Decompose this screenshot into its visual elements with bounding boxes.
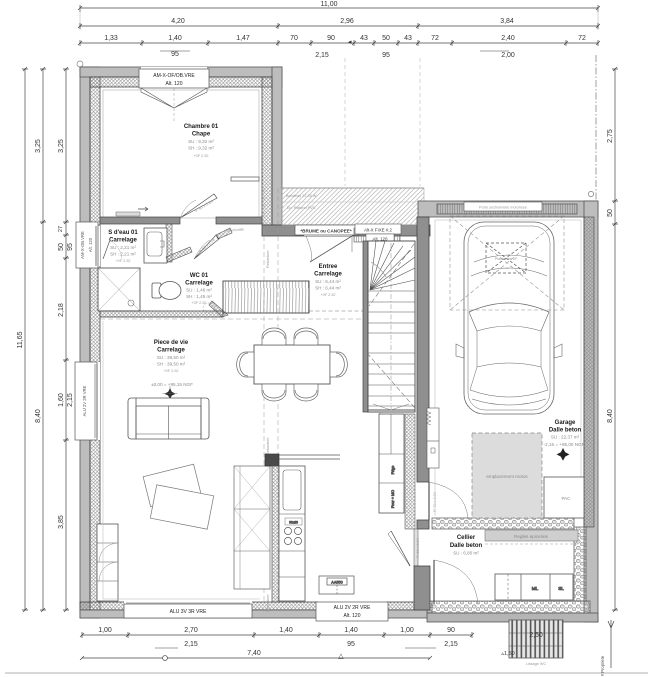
svg-text:70: 70 [290,35,298,42]
svg-text:Four + MO: Four + MO [391,490,395,508]
svg-text:90x89: 90x89 [289,521,298,525]
svg-text:1,00: 1,00 [98,627,112,634]
svg-text:+0F 2.52: +0F 2.52 [193,154,208,158]
svg-text:+0F 2.52: +0F 2.52 [320,293,335,297]
svg-text:SH : 2,21 m²: SH : 2,21 m² [110,252,136,257]
svg-text:emplacement motos: emplacement motos [486,474,528,479]
svg-text:50: 50 [607,209,614,217]
svg-text:Alt. 120: Alt. 120 [88,237,93,252]
svg-text:8,40: 8,40 [35,409,42,423]
svg-text:+0F 2.52: +0F 2.52 [163,369,178,373]
svg-text:72: 72 [578,35,586,42]
svg-text:1,40: 1,40 [168,35,182,42]
svg-text:95: 95 [67,243,74,251]
svg-text:Retombee: Retombee [266,594,270,612]
svg-text:ALU 2V 2R VRE: ALU 2V 2R VRE [82,385,87,416]
svg-text:SU : 6,44 m²: SU : 6,44 m² [315,279,341,284]
svg-text:SU : 6,80 m²: SU : 6,80 m² [453,551,479,556]
svg-text:AM-X-OB.VRE: AM-X-OB.VRE [80,231,85,259]
svg-text:Ep. Plafond PVC: Ep. Plafond PVC [287,206,316,210]
svg-text:Alt. 120: Alt. 120 [166,81,183,87]
svg-text:2,00: 2,00 [501,52,515,59]
svg-text:PAC: PAC [561,496,571,501]
svg-text:±0,00 = +95,15 NGF: ±0,00 = +95,15 NGF [151,382,193,387]
svg-text:SH : 1,45 m²: SH : 1,45 m² [186,294,212,299]
svg-text:3,84: 3,84 [500,18,514,25]
svg-text:Carrelage: Carrelage [314,272,342,278]
svg-text:90: 90 [327,35,335,42]
svg-text:P. 93 x 2.04: P. 93 x 2.04 [416,538,420,558]
svg-text:*BRUME ou CANOPEE*: *BRUME ou CANOPEE* [300,229,352,234]
svg-text:Alt-X FIXE #.2: Alt-X FIXE #.2 [364,228,392,233]
svg-text:2,40: 2,40 [501,35,515,42]
svg-text:Frigo: Frigo [391,466,395,475]
svg-text:SH : 6,44 m²: SH : 6,44 m² [315,286,341,291]
svg-text:Chambre 01: Chambre 01 [184,124,219,130]
svg-text:Garage: Garage [555,420,576,426]
svg-text:Lissage WC: Lissage WC [526,662,547,666]
svg-text:2,15: 2,15 [444,641,458,648]
svg-text:Plafonnier 2F: Plafonnier 2F [495,257,518,261]
svg-text:2,75: 2,75 [607,129,614,143]
svg-text:3,25: 3,25 [35,139,42,153]
svg-text:Carrelage: Carrelage [185,281,213,287]
svg-text:Entree: Entree [319,264,338,270]
svg-text:Dalle beton: Dalle beton [450,543,483,549]
svg-text:AM-X-OF/OB.VRE: AM-X-OF/OB.VRE [153,73,195,79]
svg-text:2,50: 2,50 [529,632,543,639]
svg-text:2,15: 2,15 [184,641,198,648]
svg-text:AA550: AA550 [331,581,342,585]
svg-text:SU : 9,32 m²: SU : 9,32 m² [188,139,214,144]
svg-text:Piece de vie: Piece de vie [154,340,189,346]
svg-text:Dalle beton: Dalle beton [549,428,582,434]
svg-text:SU : 1,46 m²: SU : 1,46 m² [186,288,212,293]
svg-text:SU : 2,21 m²: SU : 2,21 m² [110,245,136,250]
svg-text:SL: SL [558,586,564,591]
svg-text:2,18: 2,18 [58,303,65,317]
svg-text:Retombee: Retombee [266,437,270,455]
svg-text:1,47: 1,47 [236,35,250,42]
svg-text:ALU 2V 2R VRE: ALU 2V 2R VRE [334,605,371,611]
svg-text:4,20: 4,20 [171,18,185,25]
svg-text:Regles epiceries: Regles epiceries [514,534,549,539]
svg-text:8,40: 8,40 [607,409,614,423]
svg-text:50: 50 [382,35,390,42]
svg-text:1,00: 1,00 [400,627,414,634]
svg-text:7,40: 7,40 [247,650,261,657]
svg-text:3,85: 3,85 [58,515,65,529]
svg-text:+0F 2.52: +0F 2.52 [115,259,130,263]
svg-text:2,96: 2,96 [340,18,354,25]
svg-text:95: 95 [171,51,179,58]
svg-text:11,00: 11,00 [321,1,338,8]
svg-text:2,70: 2,70 [184,627,198,634]
svg-text:1,33: 1,33 [104,35,118,42]
svg-text:Chape: Chape [192,132,211,138]
svg-text:SH : 9,32 m²: SH : 9,32 m² [188,146,214,151]
svg-text:2,15: 2,15 [315,52,329,59]
svg-text:-2,15 = +95,00 NGF: -2,15 = +95,00 NGF [544,442,585,447]
svg-text:Porte sectionnelle motorisee: Porte sectionnelle motorisee [479,206,527,210]
svg-text:1,40: 1,40 [344,627,358,634]
svg-text:43: 43 [360,35,368,42]
svg-text:Cellier: Cellier [457,535,476,541]
svg-text:11,65: 11,65 [17,331,24,348]
svg-text:95: 95 [347,641,355,648]
svg-text:3,25: 3,25 [58,139,65,153]
svg-text:▵1,50: ▵1,50 [501,651,514,657]
svg-text:△: △ [338,653,344,660]
svg-text:1,40: 1,40 [279,627,293,634]
svg-text:50: 50 [58,243,65,251]
svg-text:◂: ◂ [348,39,352,46]
svg-text:Bandeau 22.35 W: Bandeau 22.35 W [286,194,317,198]
svg-text:SU : 22,37 m²: SU : 22,37 m² [551,435,580,440]
svg-text:43: 43 [404,35,412,42]
svg-text:+0F 2.52: +0F 2.52 [191,301,206,305]
svg-text:SH : 39,50 m²: SH : 39,50 m² [157,362,186,367]
svg-text:27: 27 [58,226,64,232]
svg-text:1,60: 1,60 [58,393,65,407]
svg-text:# Propriete: # Propriete [600,655,605,676]
svg-text:ML: ML [532,586,539,591]
svg-text:72: 72 [431,35,439,42]
svg-text:95: 95 [382,52,390,59]
svg-text:2,15: 2,15 [67,393,74,407]
svg-text:90: 90 [447,627,455,634]
svg-text:SU : 39,50 m²: SU : 39,50 m² [157,355,186,360]
svg-text:S d'eau 01: S d'eau 01 [108,230,138,236]
svg-text:WC 01: WC 01 [190,273,209,279]
svg-text:Retombee: Retombee [266,250,270,268]
svg-text:Carrelage: Carrelage [157,348,185,354]
svg-text:ALU 3V 3R VRE: ALU 3V 3R VRE [170,609,207,615]
svg-text:Alt. 120: Alt. 120 [344,613,361,619]
